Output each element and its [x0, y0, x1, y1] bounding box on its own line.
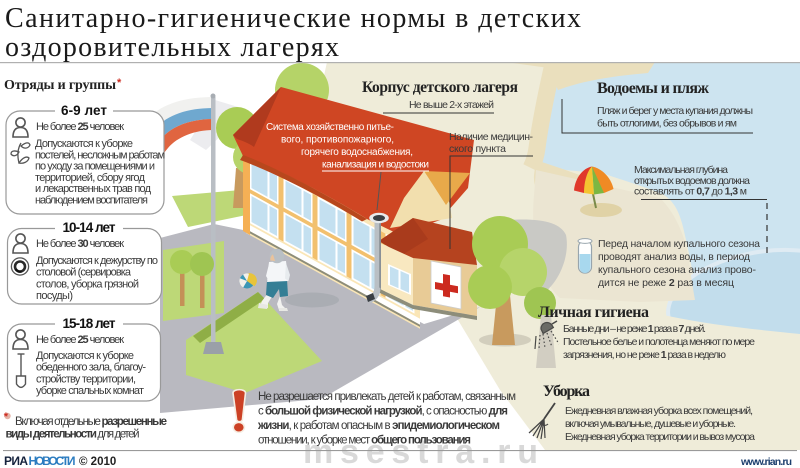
svg-text:по уходу за помещениями и: по уходу за помещениями и: [35, 161, 155, 173]
svg-text:канализация и водостоки: канализация и водостоки: [322, 160, 429, 171]
svg-text:10-14 лет: 10-14 лет: [63, 220, 116, 235]
svg-text:Отряды и группы: Отряды и группы: [4, 78, 116, 93]
svg-text:посуды): посуды): [36, 290, 73, 302]
svg-text:оздоровительных лагерях: оздоровительных лагерях: [5, 32, 339, 63]
svg-text:Допускаются к дежурству по: Допускаются к дежурству по: [36, 255, 158, 267]
svg-text:постелей, несложным работам: постелей, несложным работам: [35, 149, 165, 161]
svg-text:составлять от 0,7 до 1,3 м: составлять от 0,7 до 1,3 м: [634, 186, 747, 198]
svg-text:и лекарственных трав под: и лекарственных трав под: [35, 183, 152, 195]
svg-text:стройству территории,: стройству территории,: [36, 373, 136, 385]
svg-text:ского пункта: ского пункта: [449, 143, 506, 155]
svg-text:*: *: [4, 411, 9, 423]
svg-text:*: *: [117, 77, 122, 89]
svg-text:Ежедневная влажная уборка всех: Ежедневная влажная уборка всех помещений…: [565, 405, 753, 417]
svg-text:РИА: РИА: [4, 454, 28, 468]
svg-text:территорией, сбору ягод: территорией, сбору ягод: [35, 172, 146, 184]
svg-text:быть отлогими, без обрывов и я: быть отлогими, без обрывов и ям: [597, 118, 737, 130]
svg-text:Санитарно-гигиенические нормы: Санитарно-гигиенические нормы в детских: [5, 3, 581, 34]
svg-text:Не более 25 человек: Не более 25 человек: [36, 334, 124, 346]
svg-text:Перед началом купального сезон: Перед началом купального сезона: [598, 238, 760, 250]
svg-text:купального сезона анализ прово: купального сезона анализ прово-: [598, 264, 757, 276]
svg-text:www.rian.ru: www.rian.ru: [740, 456, 792, 468]
svg-text:включая умывальные, душевые и: включая умывальные, душевые и уборные.: [565, 418, 736, 430]
svg-text:Корпус детского лагеря: Корпус детского лагеря: [362, 79, 518, 96]
svg-text:Ежедневная уборка территории и: Ежедневная уборка территории и вывоз мус…: [565, 431, 755, 443]
svg-text:Постельное белье и полотенца м: Постельное белье и полотенца меняют по м…: [563, 336, 755, 348]
svg-text:Включая отдельные разрешенные: Включая отдельные разрешенные: [15, 416, 167, 428]
svg-text:с большой физической нагрузкой: с большой физической нагрузкой, с опасно…: [258, 406, 508, 418]
svg-text:столовой (сервировка: столовой (сервировка: [36, 267, 132, 279]
svg-text:загрязнения, но не реже 1 раза: загрязнения, но не реже 1 раза в неделю: [563, 349, 726, 361]
svg-text:вого, противопожарного,: вого, противопожарного,: [281, 135, 394, 146]
svg-text:Пляж и берег у места купания д: Пляж и берег у места купания должны: [597, 105, 753, 117]
svg-text:Не выше 2-х этажей: Не выше 2-х этажей: [409, 99, 494, 111]
svg-text:Банные дни – не реже 1 раза в: Банные дни – не реже 1 раза в 7 дней.: [563, 323, 706, 335]
svg-text:Водоемы и пляж: Водоемы и пляж: [597, 80, 709, 97]
svg-text:6-9 лет: 6-9 лет: [61, 103, 107, 118]
svg-text:проводят анализ воды, в период: проводят анализ воды, в период: [598, 251, 750, 263]
svg-text:отношении, к уборке мест общег: отношении, к уборке мест общего пользова…: [258, 435, 471, 447]
svg-text:Личная гигиена: Личная гигиена: [538, 304, 649, 321]
svg-text:Допускаются к уборке: Допускаются к уборке: [36, 350, 134, 362]
svg-text:обеденного зала, благоу-: обеденного зала, благоу-: [36, 362, 146, 374]
svg-text:виды деятельности для детей: виды деятельности для детей: [6, 429, 140, 441]
svg-text:наблюдением воспитателя: наблюдением воспитателя: [35, 195, 148, 207]
svg-text:Допускаются к уборке: Допускаются к уборке: [35, 138, 133, 150]
svg-text:Не более 30 человек: Не более 30 человек: [36, 238, 124, 250]
svg-text:НОВОСТИ: НОВОСТИ: [29, 454, 76, 468]
svg-text:жизни, к работам опасным в эпи: жизни, к работам опасным в эпидемиологич…: [257, 420, 500, 432]
svg-text:© 2010: © 2010: [79, 456, 116, 468]
svg-text:дится не реже 2 раз в месяц: дится не реже 2 раз в месяц: [598, 277, 734, 289]
svg-text:Наличие медицин-: Наличие медицин-: [449, 131, 534, 143]
svg-text:уборке спальных комнат: уборке спальных комнат: [36, 385, 144, 397]
svg-text:горячего водоснабжения,: горячего водоснабжения,: [301, 146, 413, 158]
svg-text:15-18 лет: 15-18 лет: [63, 316, 116, 331]
svg-text:Не разрешается привлекать дете: Не разрешается привлекать детей к работа…: [258, 391, 516, 403]
svg-text:Система хозяйственно питье-: Система хозяйственно питье-: [266, 122, 394, 133]
svg-text:столов, уборка грязной: столов, уборка грязной: [36, 278, 139, 290]
svg-text:Не более 25 человек: Не более 25 человек: [36, 121, 124, 133]
svg-text:Уборка: Уборка: [543, 383, 590, 400]
